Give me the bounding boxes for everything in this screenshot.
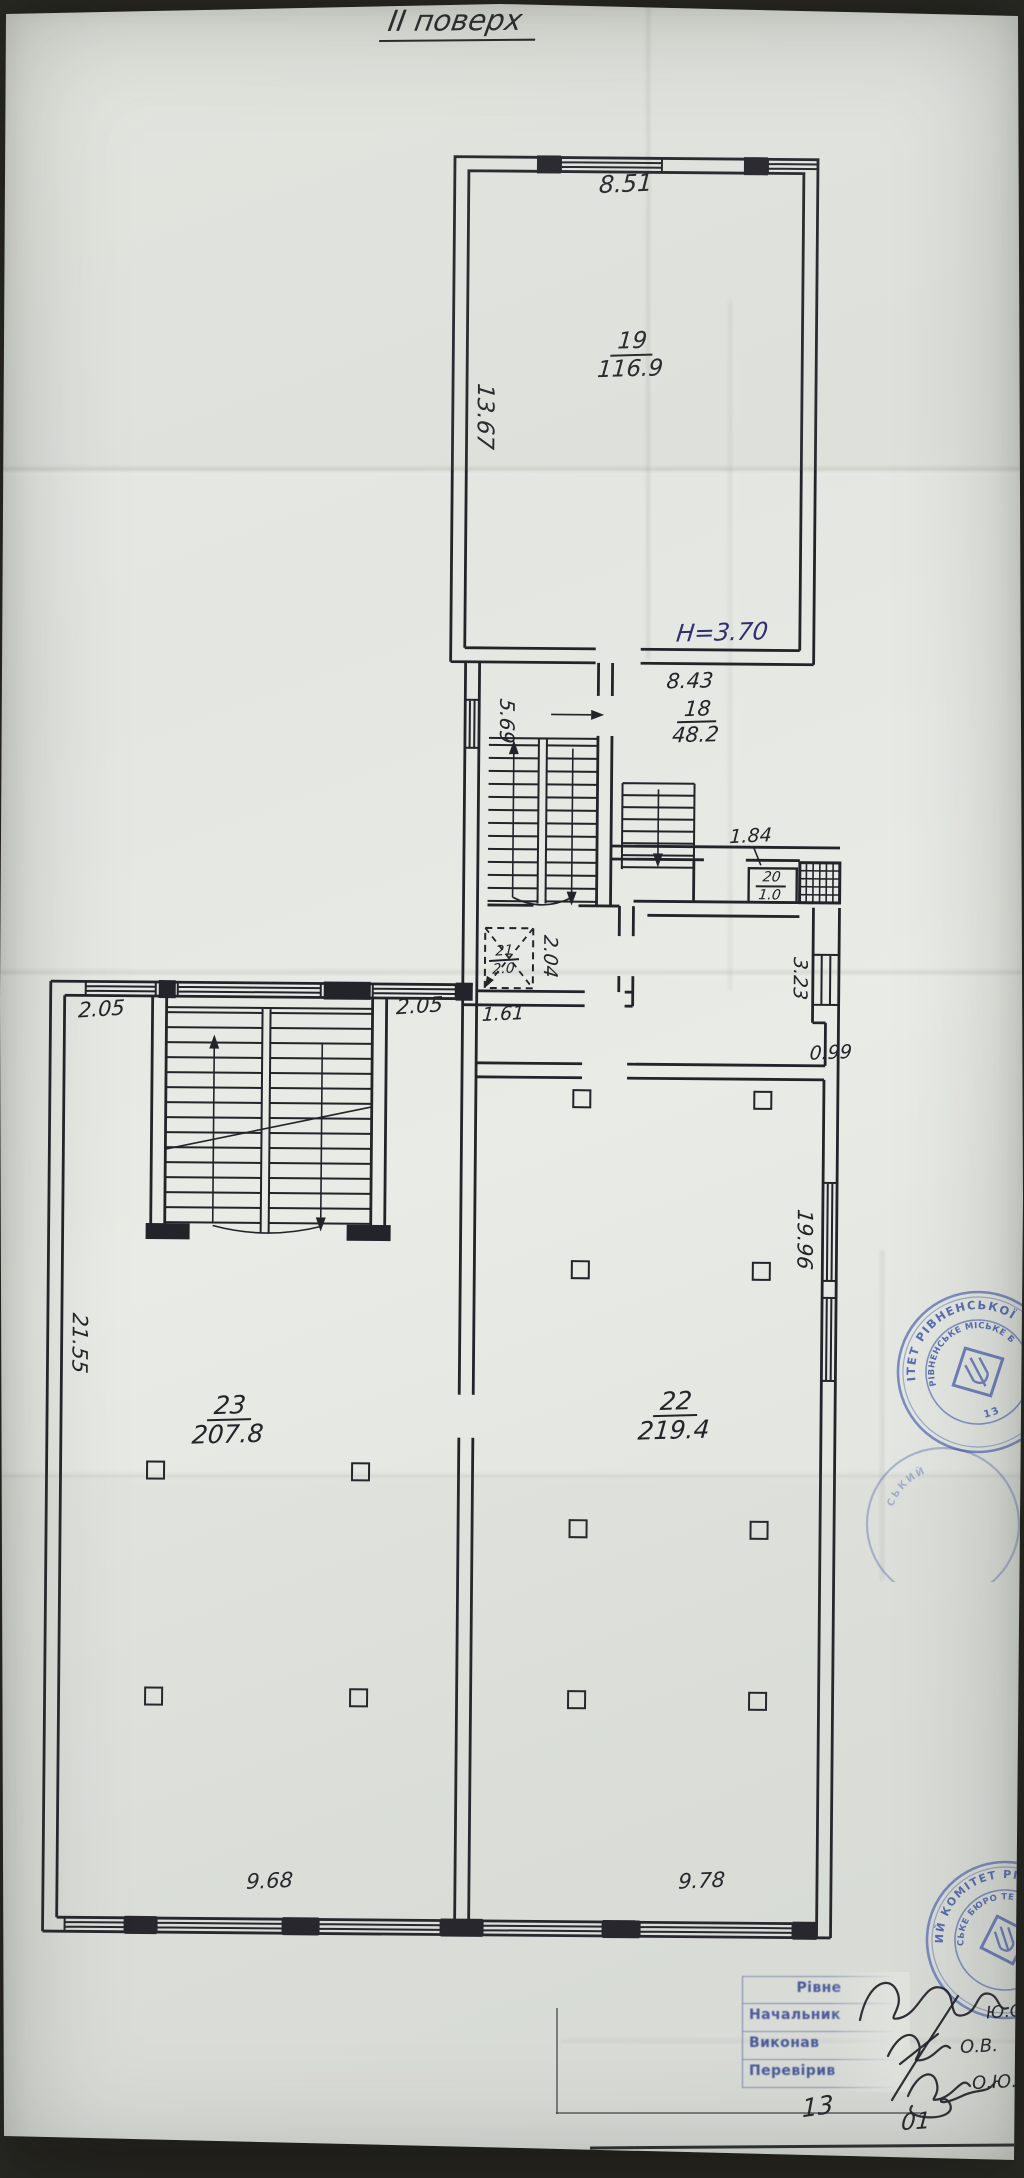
dim-1-61: 1.61	[481, 1002, 525, 1026]
room-area: 48.2	[671, 722, 720, 747]
room-area: 207.8	[191, 1420, 265, 1451]
footer-line	[556, 2112, 920, 2114]
room-number: 22	[653, 1387, 699, 1417]
room-area: 2.0	[492, 960, 515, 978]
svg-text:СЬКИЙ: СЬКИЙ	[885, 1463, 928, 1508]
dim-21-55: 21.55	[67, 1312, 92, 1375]
room-number: 18	[677, 697, 718, 723]
stairs-room23	[165, 1007, 373, 1234]
dim-13-67: 13.67	[471, 382, 498, 451]
dim-9-78: 9.78	[678, 1868, 726, 1894]
signature-stroke	[892, 1996, 958, 2100]
room-number: 21	[489, 943, 520, 962]
page-number-right: 01	[900, 2108, 931, 2136]
dim-leader	[754, 848, 761, 865]
room-label-19: 19 116.9	[596, 328, 666, 383]
initials-2: О.В.	[959, 2035, 998, 2058]
dim-2-05-right: 2.05	[396, 992, 444, 1019]
page-number-left: 13	[802, 2090, 834, 2124]
dim-5-69: 5.69	[495, 697, 519, 744]
scanned-floor-plan-photo: ІІ поверх 8.51 13.67 Н=3.70 8.43 5.69 1.…	[0, 0, 1024, 2178]
height-note: Н=3.70	[675, 617, 770, 647]
room-label-21: 21 2.0	[488, 943, 519, 978]
room-number: 19	[611, 329, 654, 357]
footer-line	[556, 2008, 558, 2114]
paper-sheet: ІІ поверх 8.51 13.67 Н=3.70 8.43 5.69 1.…	[0, 0, 1024, 2178]
room-label-20: 20 1.0	[754, 870, 788, 903]
signature-stroke	[888, 2034, 950, 2064]
floor-plan: ІІ поверх 8.51 13.67 Н=3.70 8.43 5.69 1.…	[0, 0, 1024, 2178]
room-label-22: 22 219.4	[637, 1387, 713, 1447]
dim-3-23: 3.23	[789, 956, 811, 1001]
dim-9-68: 9.68	[246, 1868, 294, 1894]
stairs-secondary	[622, 783, 695, 870]
round-stamp-mid: ІТЕТ РІВНЕНСЬКОЇ М РІВНЕНСЬКЕ МІСЬКЕ БЮР…	[858, 1252, 1024, 1582]
dim-8-51: 8.51	[598, 169, 653, 199]
room-area: 116.9	[596, 355, 664, 383]
room-number: 20	[756, 870, 788, 887]
floor-plan-drawing	[0, 0, 1024, 2178]
dim-1-84: 1.84	[729, 824, 773, 848]
ghost-stamp: СЬКИЙ	[867, 1448, 1019, 1582]
trident-icon	[941, 1335, 1016, 1409]
room-number: 23	[207, 1391, 253, 1421]
initials-3: О.Ю.	[971, 2071, 1017, 2094]
room-area: 219.4	[637, 1416, 711, 1447]
window-symbols	[65, 153, 846, 1938]
room-label-23: 23 207.8	[191, 1391, 267, 1451]
dim-2-05-left: 2.05	[78, 996, 126, 1023]
room-label-18: 18 48.2	[671, 697, 722, 747]
dim-8-43: 8.43	[666, 668, 715, 693]
initials-1: Ю.О.	[985, 2001, 1024, 2024]
dim-0-99: 0.99	[809, 1041, 853, 1065]
stairs-main	[487, 738, 597, 906]
dim-19-96: 19.96	[792, 1208, 817, 1271]
ghost-stamp-text: СЬКИЙ	[885, 1463, 928, 1508]
page-title: ІІ поверх	[379, 3, 541, 42]
room-area: 1.0	[758, 887, 782, 903]
dim-2-04: 2.04	[539, 934, 561, 979]
walls	[43, 153, 846, 1938]
